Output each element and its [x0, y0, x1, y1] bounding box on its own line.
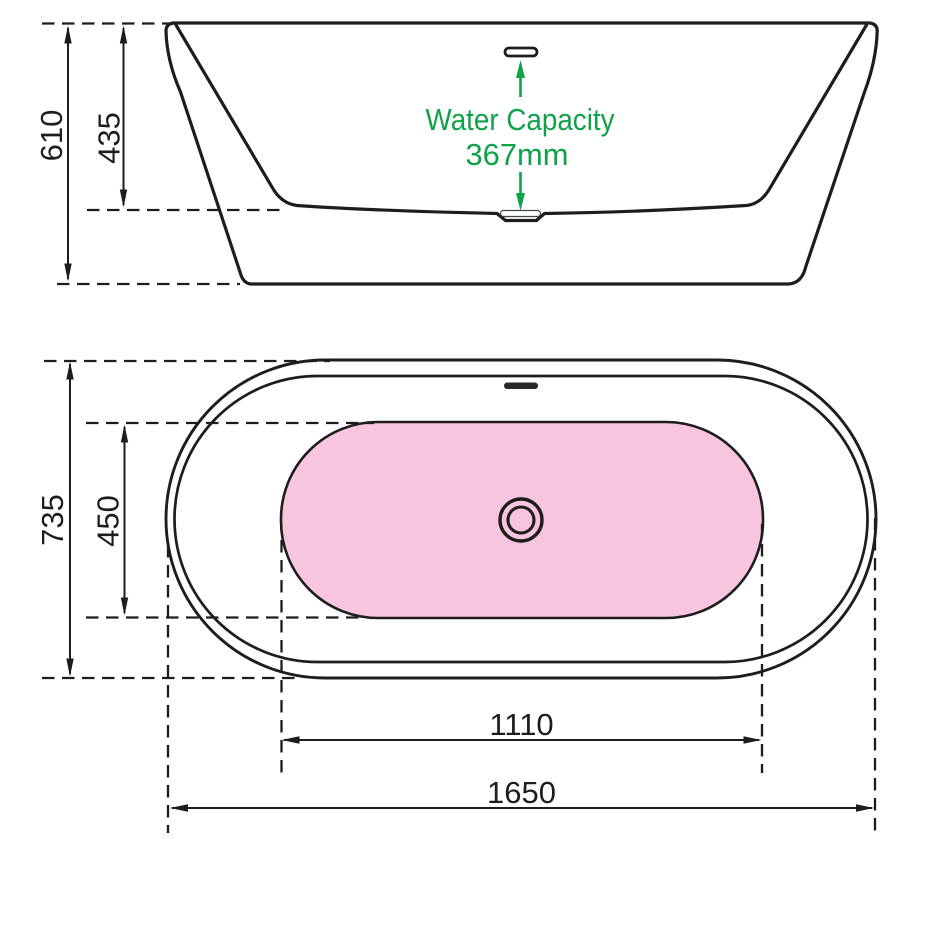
svg-text:1110: 1110 — [489, 707, 553, 742]
svg-text:435: 435 — [92, 112, 127, 164]
svg-text:610: 610 — [34, 110, 69, 162]
svg-text:Water Capacity: Water Capacity — [426, 102, 615, 137]
svg-text:1650: 1650 — [487, 775, 556, 810]
svg-text:735: 735 — [35, 494, 70, 546]
svg-text:367mm: 367mm — [466, 137, 569, 172]
svg-text:450: 450 — [91, 495, 126, 547]
